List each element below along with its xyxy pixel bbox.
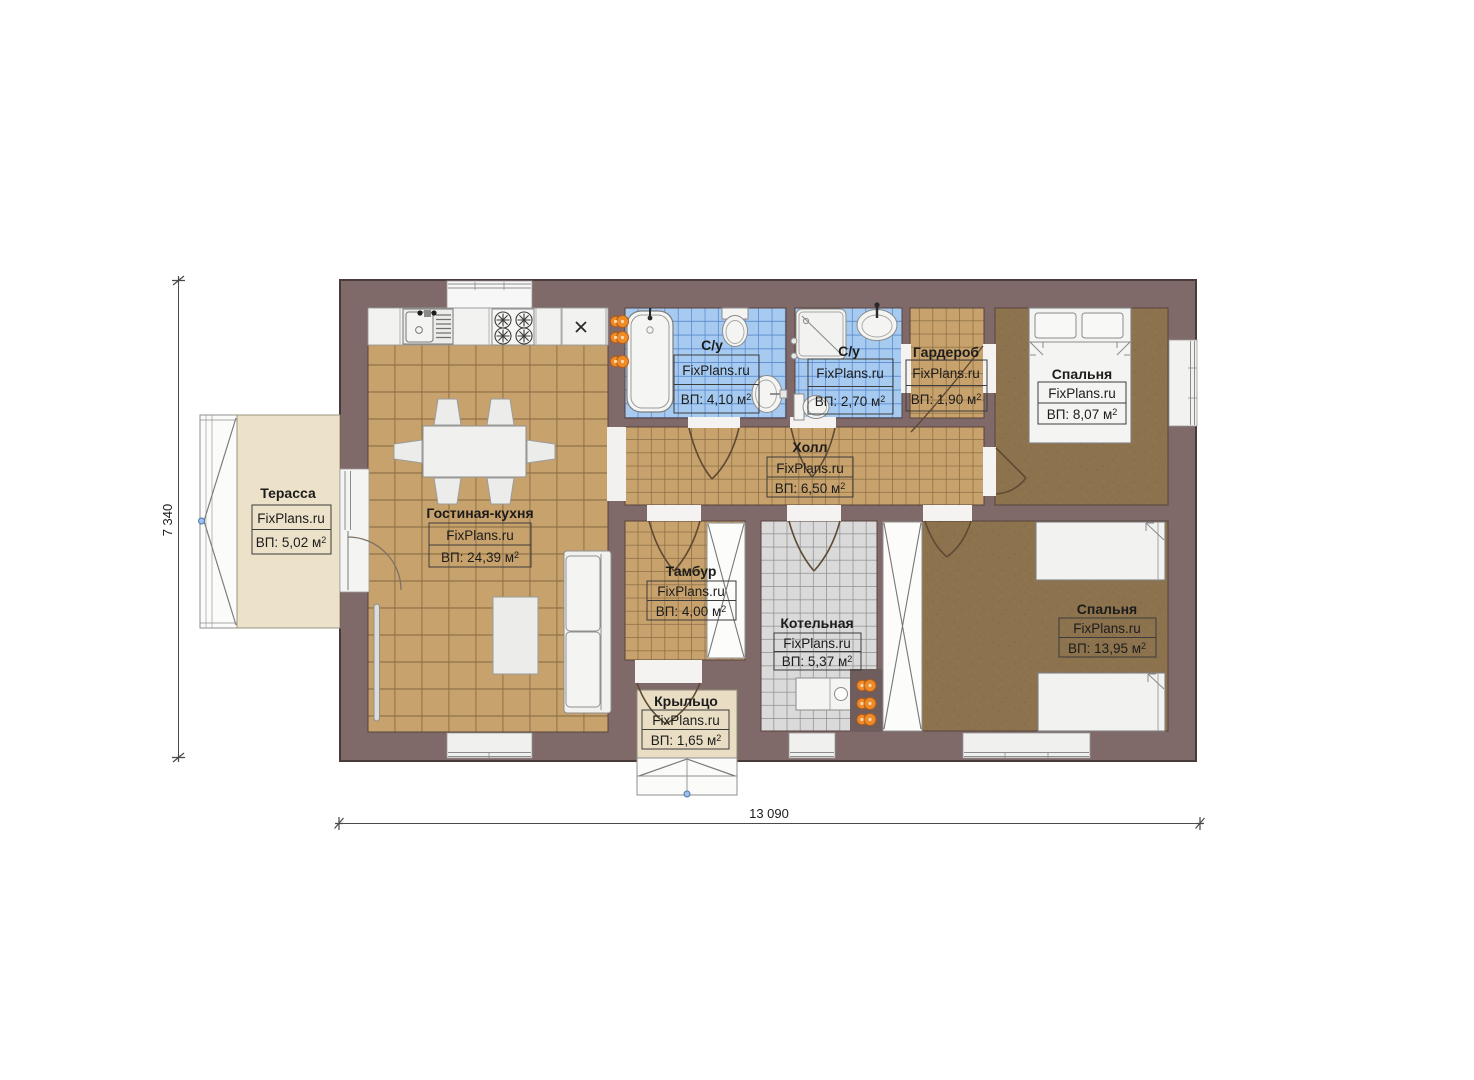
svg-text:FixPlans.ru: FixPlans.ru [776, 461, 844, 476]
svg-text:Холл: Холл [792, 439, 827, 455]
svg-text:13 090: 13 090 [749, 806, 789, 821]
svg-text:ВП: 2,70 м2: ВП: 2,70 м2 [815, 394, 886, 409]
svg-text:Крыльцо: Крыльцо [654, 693, 718, 709]
svg-text:ВП: 5,02 м2: ВП: 5,02 м2 [256, 535, 327, 550]
svg-text:Гардероб: Гардероб [913, 344, 980, 360]
svg-text:FixPlans.ru: FixPlans.ru [446, 528, 514, 543]
svg-text:FixPlans.ru: FixPlans.ru [657, 584, 725, 599]
svg-text:Тамбур: Тамбур [666, 563, 717, 579]
svg-text:7 340: 7 340 [160, 504, 175, 537]
svg-text:ВП: 13,95 м2: ВП: 13,95 м2 [1068, 641, 1146, 656]
svg-text:FixPlans.ru: FixPlans.ru [257, 511, 325, 526]
svg-text:Спальня: Спальня [1077, 601, 1137, 617]
svg-text:FixPlans.ru: FixPlans.ru [783, 636, 851, 651]
svg-text:ВП: 1,90 м2: ВП: 1,90 м2 [911, 392, 982, 407]
svg-text:FixPlans.ru: FixPlans.ru [1048, 386, 1116, 401]
svg-text:ВП: 1,65 м2: ВП: 1,65 м2 [651, 733, 722, 748]
svg-text:FixPlans.ru: FixPlans.ru [912, 366, 980, 381]
svg-text:FixPlans.ru: FixPlans.ru [682, 363, 750, 378]
svg-text:ВП: 8,07 м2: ВП: 8,07 м2 [1047, 407, 1118, 422]
svg-text:Котельная: Котельная [780, 615, 853, 631]
svg-text:Гостиная-кухня: Гостиная-кухня [426, 505, 533, 521]
svg-text:FixPlans.ru: FixPlans.ru [652, 713, 720, 728]
svg-text:FixPlans.ru: FixPlans.ru [1073, 621, 1141, 636]
svg-text:ВП: 4,00 м2: ВП: 4,00 м2 [656, 604, 727, 619]
svg-text:ВП: 6,50 м2: ВП: 6,50 м2 [775, 481, 846, 496]
svg-text:С/у: С/у [701, 337, 723, 353]
svg-text:ВП: 5,37 м2: ВП: 5,37 м2 [782, 654, 853, 669]
svg-text:ВП: 24,39 м2: ВП: 24,39 м2 [441, 550, 519, 565]
svg-text:Спальня: Спальня [1052, 366, 1112, 382]
svg-text:FixPlans.ru: FixPlans.ru [816, 366, 884, 381]
svg-text:Терасса: Терасса [260, 485, 316, 501]
svg-text:С/у: С/у [838, 343, 860, 359]
svg-text:ВП: 4,10 м2: ВП: 4,10 м2 [681, 392, 752, 407]
